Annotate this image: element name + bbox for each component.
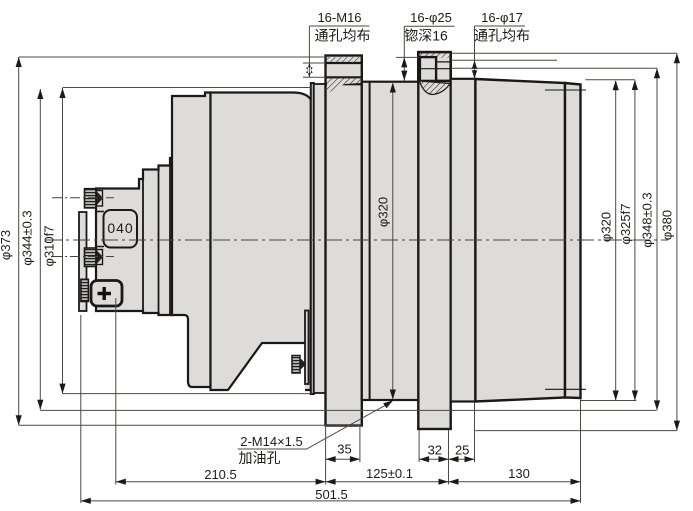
svg-text:16-M16: 16-M16 bbox=[317, 10, 361, 25]
svg-text:040: 040 bbox=[107, 220, 133, 236]
svg-text:加油孔: 加油孔 bbox=[239, 450, 281, 466]
svg-text:通孔均布: 通孔均布 bbox=[474, 28, 530, 44]
svg-text:φ310f7: φ310f7 bbox=[42, 226, 57, 267]
svg-text:2-M14×1.5: 2-M14×1.5 bbox=[240, 434, 303, 449]
svg-text:φ344±0.3: φ344±0.3 bbox=[20, 210, 35, 265]
svg-text:锪深16: 锪深16 bbox=[404, 28, 448, 44]
svg-text:25: 25 bbox=[455, 443, 469, 458]
svg-text:210.5: 210.5 bbox=[204, 467, 237, 482]
svg-text:通孔均布: 通孔均布 bbox=[315, 28, 371, 44]
svg-text:16-φ17: 16-φ17 bbox=[481, 10, 523, 25]
svg-text:φ325f7: φ325f7 bbox=[618, 204, 633, 245]
svg-text:16-φ25: 16-φ25 bbox=[410, 10, 452, 25]
svg-text:φ320: φ320 bbox=[599, 212, 614, 242]
svg-text:φ320: φ320 bbox=[376, 197, 391, 227]
svg-text:32: 32 bbox=[428, 443, 442, 458]
svg-text:φ380: φ380 bbox=[660, 210, 675, 240]
svg-text:φ348±0.3: φ348±0.3 bbox=[640, 192, 655, 247]
svg-text:125±0.1: 125±0.1 bbox=[366, 466, 413, 481]
svg-text:35: 35 bbox=[337, 442, 351, 457]
svg-text:501.5: 501.5 bbox=[315, 487, 348, 502]
svg-text:φ373: φ373 bbox=[0, 230, 13, 260]
svg-text:130: 130 bbox=[508, 466, 530, 481]
